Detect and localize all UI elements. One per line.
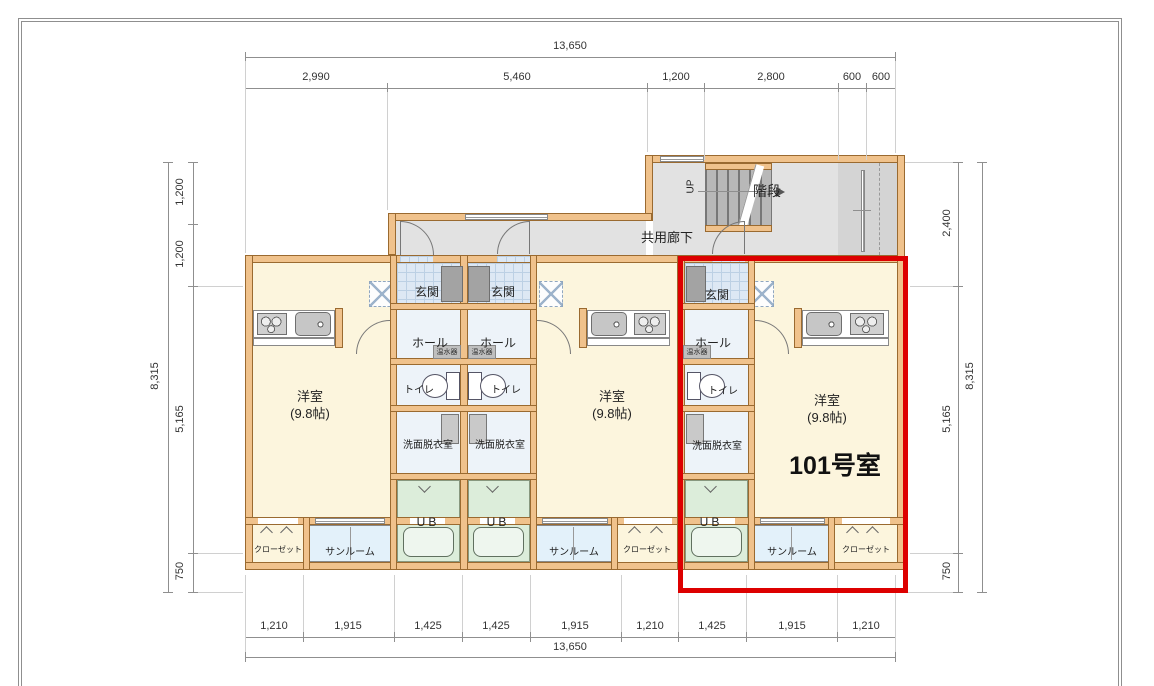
- sunroom-label: サンルーム: [534, 543, 614, 558]
- unit-bath-label: UB: [398, 515, 458, 529]
- wall: [390, 303, 537, 310]
- unit-101-highlight-box: [678, 256, 908, 593]
- bathtub: [473, 527, 524, 557]
- stove: [634, 313, 666, 335]
- dim-extension-line: [910, 286, 953, 287]
- sunroom-window: [542, 518, 608, 524]
- dim-bottom: 1,425: [682, 620, 742, 632]
- dim-extension-line: [647, 92, 648, 152]
- washroom-label: 洗面脱衣室: [392, 436, 464, 451]
- wall: [390, 405, 537, 412]
- dim-extension-line: [621, 575, 622, 632]
- entrance-label: 玄関: [404, 283, 450, 300]
- dimension-line: [245, 637, 895, 638]
- dim-top: 2,990: [286, 71, 346, 83]
- dim-bottom: 1,425: [466, 620, 526, 632]
- dim-left-total: 8,315: [149, 346, 161, 406]
- entrance-label: 玄関: [480, 283, 526, 300]
- dimension-tick: [895, 652, 896, 662]
- dim-top-total: 13,650: [245, 40, 895, 52]
- stairs-up-label: UP: [686, 172, 697, 202]
- dim-left: 1,200: [174, 224, 186, 284]
- dimension-tick: [188, 286, 198, 287]
- dim-bottom: 1,210: [620, 620, 680, 632]
- dim-extension-line: [866, 92, 867, 160]
- dim-extension-line: [895, 61, 896, 153]
- unit-bath-label: UB: [468, 515, 528, 529]
- hall-label: ホール: [404, 334, 456, 351]
- bathtub: [403, 527, 454, 557]
- dimension-tick: [188, 224, 198, 225]
- alcove-window: [465, 214, 548, 220]
- dimension-line: [168, 162, 169, 592]
- dimension-line: [982, 162, 983, 592]
- door-leaf: [400, 221, 401, 255]
- toilet-label: トイレ: [481, 381, 531, 396]
- dim-bottom: 1,915: [318, 620, 378, 632]
- dimension-tick: [953, 553, 963, 554]
- wall: [390, 358, 537, 365]
- entrance-porch-tile: [539, 281, 563, 307]
- wall: [390, 473, 537, 480]
- dimension-line: [245, 88, 895, 89]
- dimension-tick: [245, 652, 246, 662]
- dim-left: 1,200: [174, 162, 186, 222]
- dim-extension-line: [530, 575, 531, 632]
- stairs-label: 階段: [753, 181, 781, 201]
- room-size-label: (9.8帖): [255, 405, 365, 422]
- kitchen-sink: [295, 312, 331, 336]
- dimension-tick: [188, 592, 198, 593]
- wall: [335, 308, 343, 348]
- dim-bottom: 1,210: [244, 620, 304, 632]
- dimension-line: [245, 57, 895, 58]
- closet-label: クローゼット: [250, 544, 306, 555]
- dim-right: 2,400: [941, 193, 953, 253]
- doorway: [497, 256, 530, 262]
- kitchen-counter-base: [253, 338, 335, 346]
- dim-bottom: 1,425: [398, 620, 458, 632]
- floorplan-canvas: UP 階段 共用廊下: [0, 0, 1154, 686]
- corridor-dashed-line: [879, 163, 880, 255]
- corridor-window: [660, 156, 704, 162]
- dim-bottom: 1,915: [545, 620, 605, 632]
- kitchen-sink: [591, 312, 627, 336]
- door-leaf: [529, 221, 530, 254]
- closet-opening: [258, 518, 298, 524]
- common-corridor-label: 共用廊下: [641, 227, 693, 246]
- washroom-label: 洗面脱衣室: [464, 436, 536, 451]
- door-leaf: [744, 221, 745, 254]
- dim-extension-line: [245, 575, 246, 652]
- dimension-tick: [953, 162, 963, 163]
- doorway: [400, 256, 433, 262]
- room-label: 洋室: [557, 388, 667, 405]
- room-size-label: (9.8帖): [557, 405, 667, 422]
- dim-extension-line: [910, 553, 953, 554]
- dimension-tick: [953, 286, 963, 287]
- kitchen-counter-base: [587, 338, 670, 346]
- dimension-tick: [977, 592, 987, 593]
- partition-tick: [853, 210, 871, 211]
- dim-top: 600: [851, 71, 911, 83]
- dimension-tick: [953, 592, 963, 593]
- closet-label: クローゼット: [619, 544, 675, 555]
- sunroom-label: サンルーム: [310, 543, 390, 558]
- dimension-line: [245, 657, 895, 658]
- room-2-label: 洋室 (9.8帖): [557, 388, 667, 422]
- corridor-glass-partition: [861, 170, 865, 252]
- hall-label: ホール: [472, 334, 524, 351]
- dim-right-total: 8,315: [964, 346, 976, 406]
- dim-extension-line: [838, 92, 839, 160]
- dim-extension-line: [303, 575, 304, 632]
- dim-extension-line: [704, 92, 705, 160]
- dim-extension-line: [394, 575, 395, 632]
- dim-right: 5,165: [941, 389, 953, 449]
- room-1-label: 洋室 (9.8帖): [255, 388, 365, 422]
- room-label: 洋室: [255, 388, 365, 405]
- dim-extension-line: [198, 286, 243, 287]
- toilet-label: トイレ: [394, 381, 444, 396]
- dim-extension-line: [198, 553, 243, 554]
- dimension-tick: [163, 592, 173, 593]
- wall: [388, 213, 396, 255]
- dim-extension-line: [905, 592, 953, 593]
- dimension-tick: [977, 162, 987, 163]
- dim-extension-line: [905, 162, 953, 163]
- dim-bottom: 1,210: [836, 620, 896, 632]
- dimension-line: [193, 162, 194, 592]
- sunroom-window: [315, 518, 385, 524]
- closet-opening: [624, 518, 672, 524]
- dim-left: 5,165: [174, 389, 186, 449]
- dimension-tick: [188, 553, 198, 554]
- dimension-tick: [163, 162, 173, 163]
- dim-extension-line: [387, 92, 388, 210]
- dim-top: 5,460: [487, 71, 547, 83]
- dim-bottom: 1,915: [762, 620, 822, 632]
- wall: [579, 308, 587, 348]
- dim-extension-line: [198, 592, 243, 593]
- dim-bottom-total: 13,650: [245, 641, 895, 653]
- dimension-tick: [188, 162, 198, 163]
- dim-extension-line: [245, 61, 246, 253]
- wall: [645, 155, 653, 221]
- dim-top: 2,800: [741, 71, 801, 83]
- common-corridor-shadow: [838, 163, 897, 255]
- toilet-tank: [446, 372, 460, 400]
- dim-extension-line: [462, 575, 463, 632]
- stove: [257, 313, 287, 335]
- dim-top: 1,200: [646, 71, 706, 83]
- dimension-line: [958, 162, 959, 592]
- dim-left: 750: [174, 541, 186, 601]
